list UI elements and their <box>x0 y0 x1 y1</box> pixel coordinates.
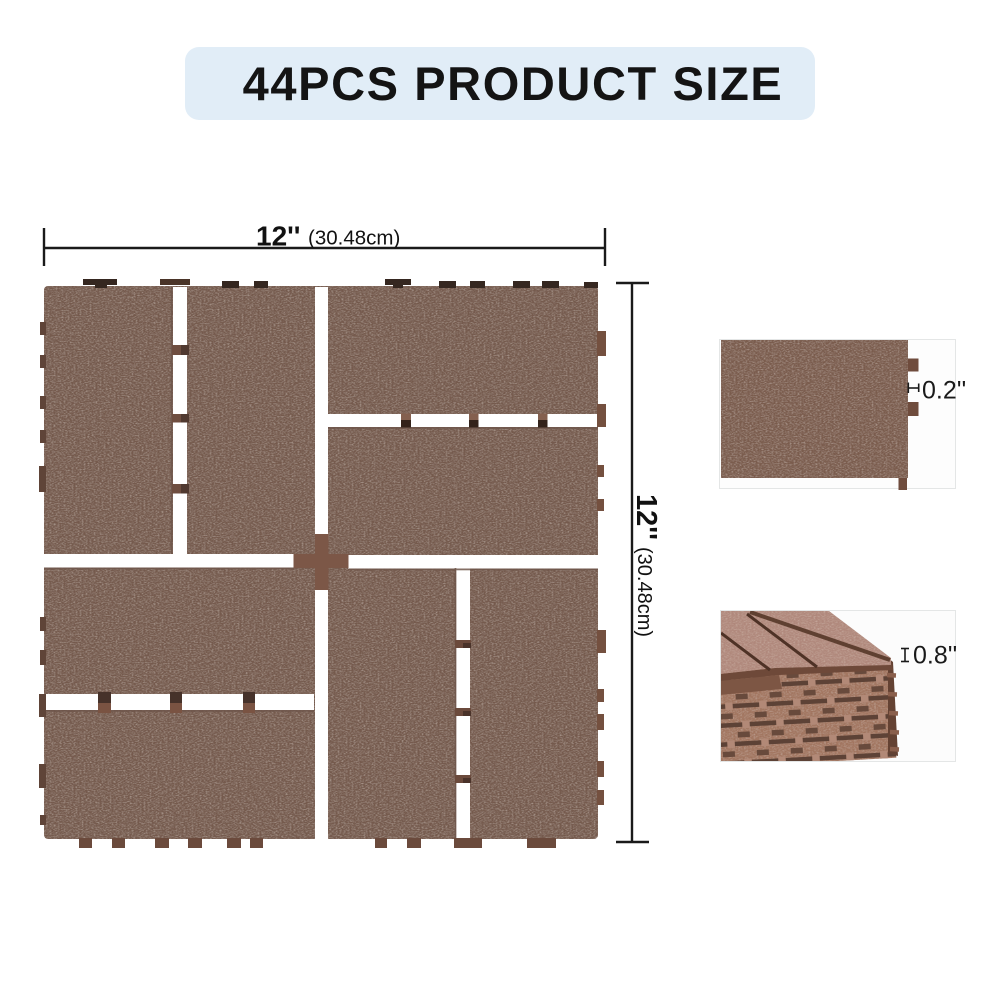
svg-text:(30.48cm): (30.48cm) <box>633 547 655 637</box>
svg-text:0.2'': 0.2'' <box>922 377 966 405</box>
svg-text:12'': 12'' <box>630 494 662 540</box>
svg-text:44PCS PRODUCT SIZE: 44PCS PRODUCT SIZE <box>243 57 784 110</box>
svg-text:0.8'': 0.8'' <box>913 642 957 670</box>
svg-text:12'': 12'' <box>256 221 300 252</box>
svg-text:(30.48cm): (30.48cm) <box>308 227 400 250</box>
